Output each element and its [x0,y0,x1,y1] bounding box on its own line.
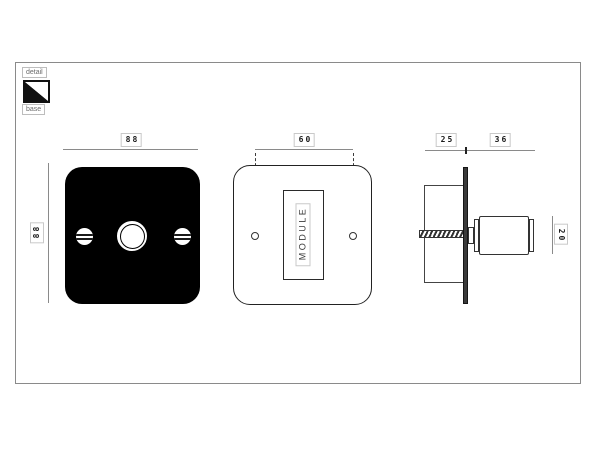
width-dimension-label: 88 [121,133,142,147]
screw-hole-left-icon [251,232,259,240]
knob-diameter-dimension-label: 20 [554,224,568,245]
module-label: MODULE [296,204,311,267]
screw-slot-icon [174,238,191,240]
height-dimension-label: 88 [30,223,44,244]
legend-base-label: base [22,104,45,115]
threaded-spindle-icon [419,230,464,238]
hole-spacing-dimension-line [255,149,353,150]
screw-slot-icon [76,234,93,236]
finish-swatch-icon [23,80,50,103]
knob-end-cap-right [529,219,534,252]
screw-right-icon [174,228,191,245]
legend-detail-label: detail [22,67,47,78]
screw-slot-icon [174,234,191,236]
width-dimension-line [63,149,198,150]
dimmer-knob-ring-icon [120,224,145,249]
box-depth-dimension-label: 25 [436,133,457,147]
knob-body-side [479,216,529,255]
height-dimension-line [48,163,49,303]
depth-dimension-line [425,150,535,151]
dimension-tick [465,147,467,154]
hole-spacing-dimension-label: 60 [294,133,315,147]
screw-left-icon [76,228,93,245]
knob-diameter-dimension-line [552,216,553,254]
drawing-page: detail base 88 88 60 MODULE [0,0,600,450]
knob-projection-dimension-label: 36 [490,133,511,147]
screw-hole-right-icon [349,232,357,240]
screw-slot-icon [76,238,93,240]
